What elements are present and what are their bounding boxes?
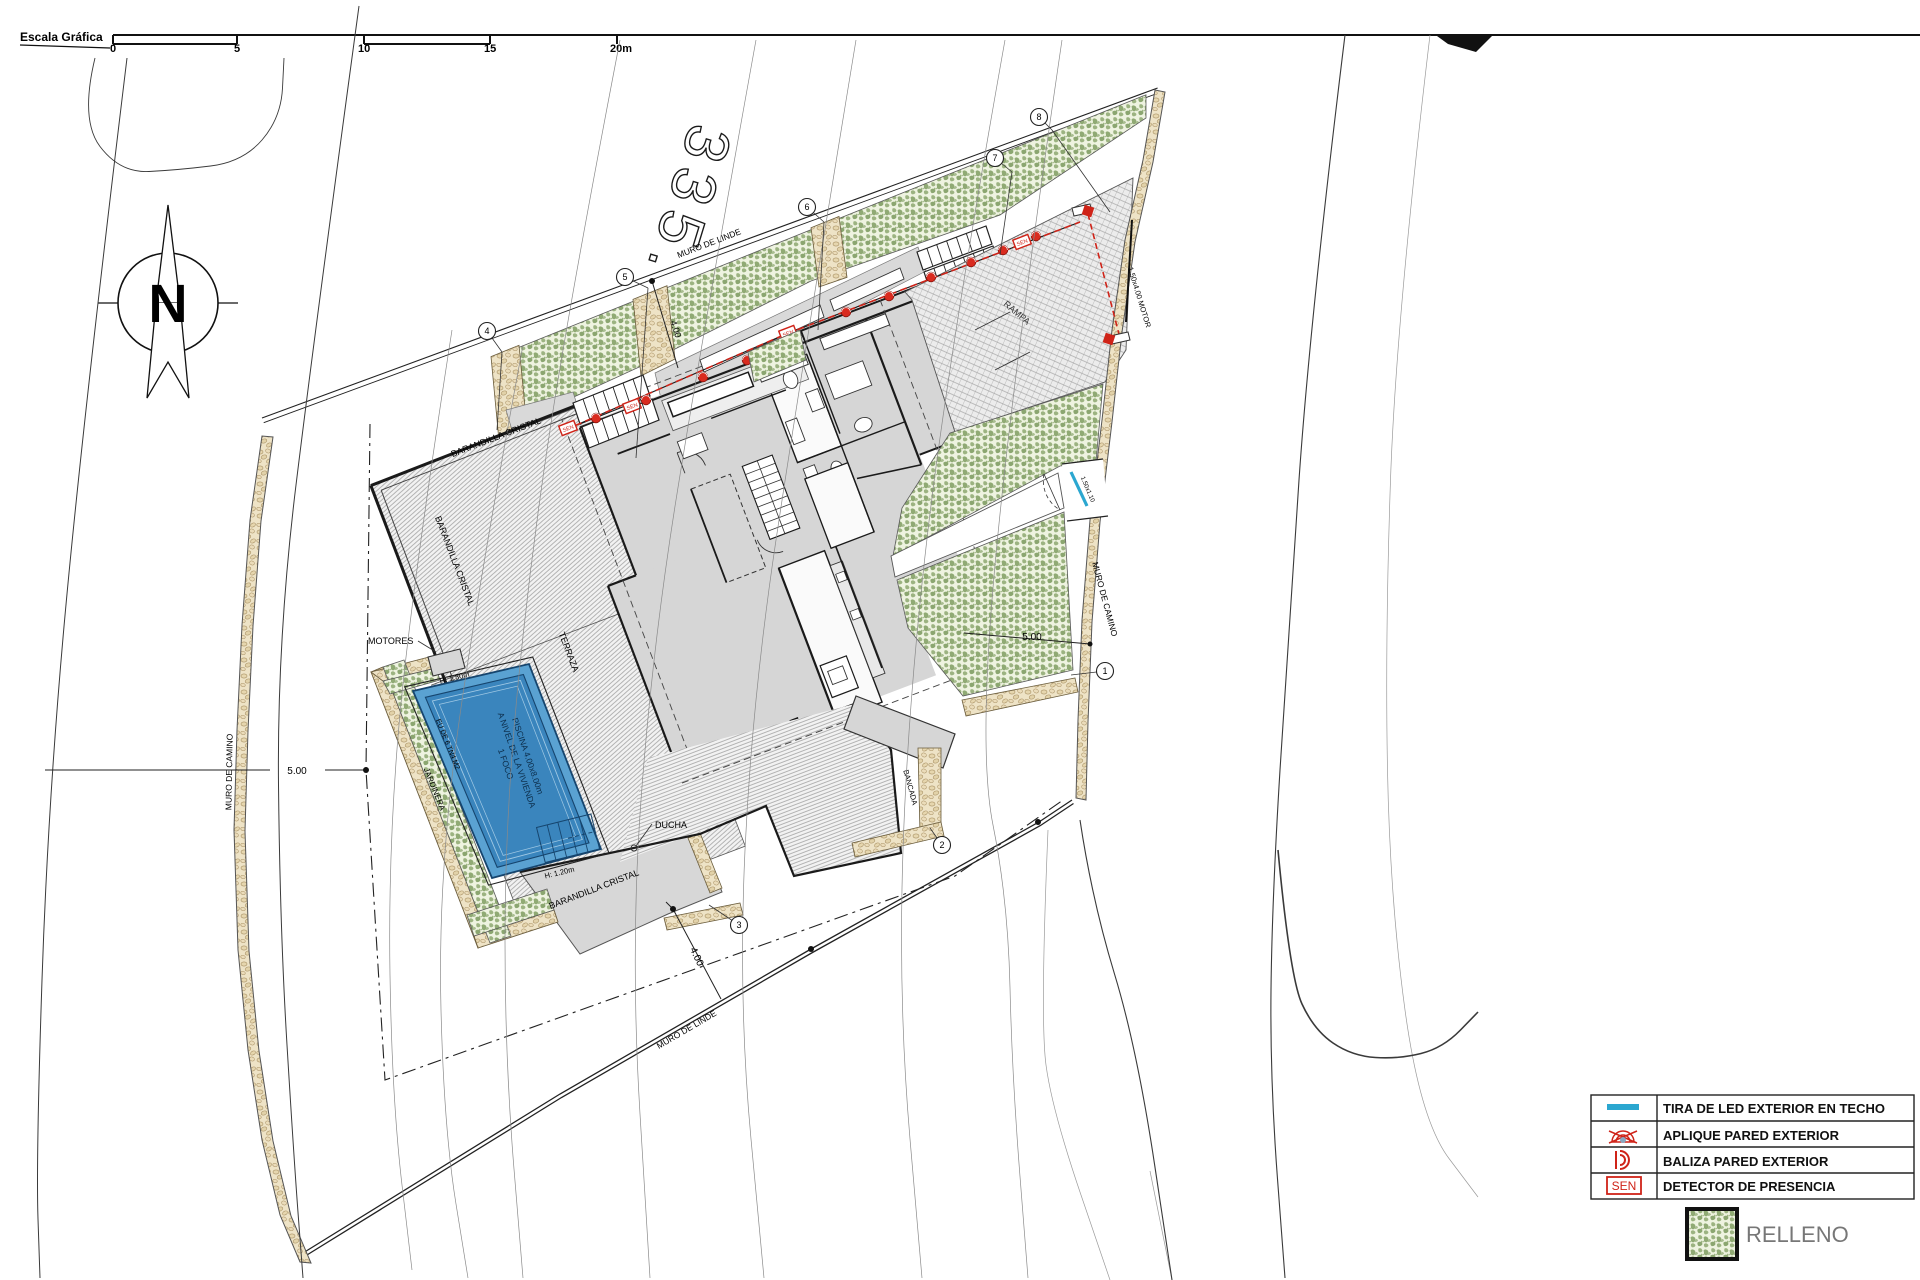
svg-text:MOTORES: MOTORES: [368, 636, 413, 646]
svg-text:Escala Gráfica: Escala Gráfica: [20, 30, 103, 44]
svg-text:6: 6: [804, 202, 809, 212]
svg-text:TIRA DE LED EXTERIOR EN TECHO: TIRA DE LED EXTERIOR EN TECHO: [1663, 1101, 1885, 1116]
svg-text:4: 4: [484, 326, 489, 336]
svg-text:20m: 20m: [610, 43, 632, 55]
svg-text:APLIQUE PARED EXTERIOR: APLIQUE PARED EXTERIOR: [1663, 1128, 1840, 1143]
svg-text:0: 0: [110, 43, 116, 55]
svg-text:5: 5: [234, 43, 240, 55]
svg-text:5.00: 5.00: [1022, 632, 1042, 643]
svg-text:DETECTOR DE PRESENCIA: DETECTOR DE PRESENCIA: [1663, 1179, 1836, 1194]
svg-text:SEN: SEN: [1612, 1179, 1637, 1193]
svg-text:5: 5: [622, 272, 627, 282]
svg-text:RELLENO: RELLENO: [1746, 1222, 1849, 1247]
svg-text:2: 2: [939, 840, 944, 850]
svg-text:3: 3: [736, 920, 741, 930]
svg-text:DUCHA: DUCHA: [655, 820, 687, 830]
svg-text:8: 8: [1036, 112, 1041, 122]
svg-text:MURO DE CAMINO: MURO DE CAMINO: [223, 733, 234, 810]
svg-text:10: 10: [358, 43, 370, 55]
svg-text:BALIZA PARED EXTERIOR: BALIZA PARED EXTERIOR: [1663, 1154, 1829, 1169]
svg-text:N: N: [149, 274, 188, 334]
svg-text:5.00: 5.00: [287, 766, 307, 777]
svg-text:1: 1: [1102, 666, 1107, 676]
svg-text:7: 7: [992, 153, 997, 163]
svg-text:15: 15: [484, 43, 496, 55]
